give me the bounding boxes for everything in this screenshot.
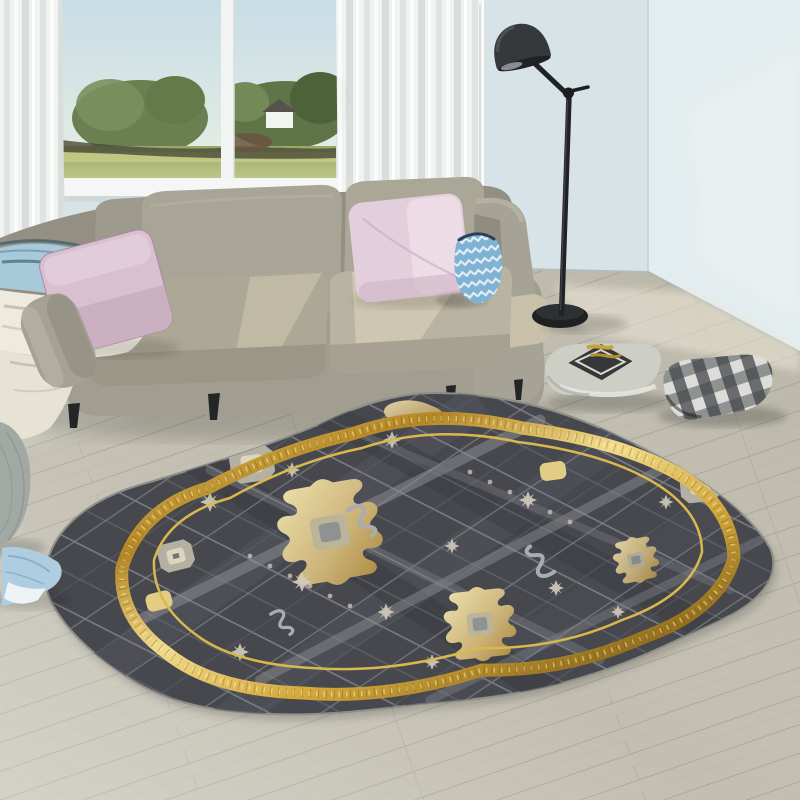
scene-canvas <box>0 0 800 800</box>
pink-pillow-right <box>347 192 471 303</box>
window <box>46 0 352 202</box>
geometric-floor-cushion <box>544 340 672 412</box>
living-room-scene <box>0 0 800 800</box>
plaid-floor-cushion <box>658 353 786 427</box>
window-mullion <box>221 0 234 182</box>
